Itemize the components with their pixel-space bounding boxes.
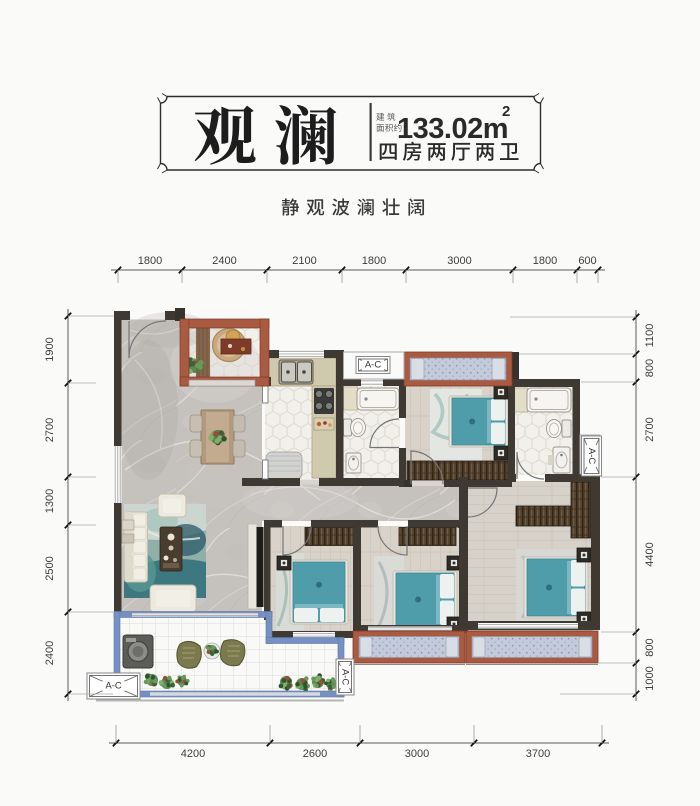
- svg-text:3000: 3000: [447, 255, 471, 267]
- svg-text:1900: 1900: [44, 337, 56, 361]
- svg-text:1800: 1800: [138, 255, 162, 267]
- svg-text:A-C: A-C: [340, 669, 351, 686]
- svg-text:2: 2: [502, 103, 510, 120]
- svg-text:A-C: A-C: [105, 681, 122, 692]
- svg-text:600: 600: [578, 255, 596, 267]
- svg-text:A-C: A-C: [365, 360, 382, 371]
- svg-text:1000: 1000: [644, 666, 656, 690]
- svg-text:2400: 2400: [212, 255, 236, 267]
- svg-text:2600: 2600: [303, 748, 327, 760]
- svg-text:4200: 4200: [181, 748, 205, 760]
- svg-text:3700: 3700: [526, 748, 550, 760]
- svg-text:133.02m: 133.02m: [397, 113, 508, 145]
- svg-text:1300: 1300: [44, 489, 56, 513]
- svg-text:1800: 1800: [362, 255, 386, 267]
- svg-text:2700: 2700: [644, 417, 656, 441]
- svg-text:2700: 2700: [44, 418, 56, 442]
- svg-text:1800: 1800: [533, 255, 557, 267]
- svg-text:3000: 3000: [405, 748, 429, 760]
- svg-text:1100: 1100: [644, 324, 656, 348]
- svg-text:A-C: A-C: [586, 448, 597, 465]
- svg-text:2500: 2500: [44, 556, 56, 580]
- svg-text:800: 800: [644, 638, 656, 656]
- svg-text:2400: 2400: [44, 641, 56, 665]
- svg-text:4400: 4400: [644, 542, 656, 566]
- svg-text:800: 800: [644, 359, 656, 377]
- svg-text:2100: 2100: [292, 255, 316, 267]
